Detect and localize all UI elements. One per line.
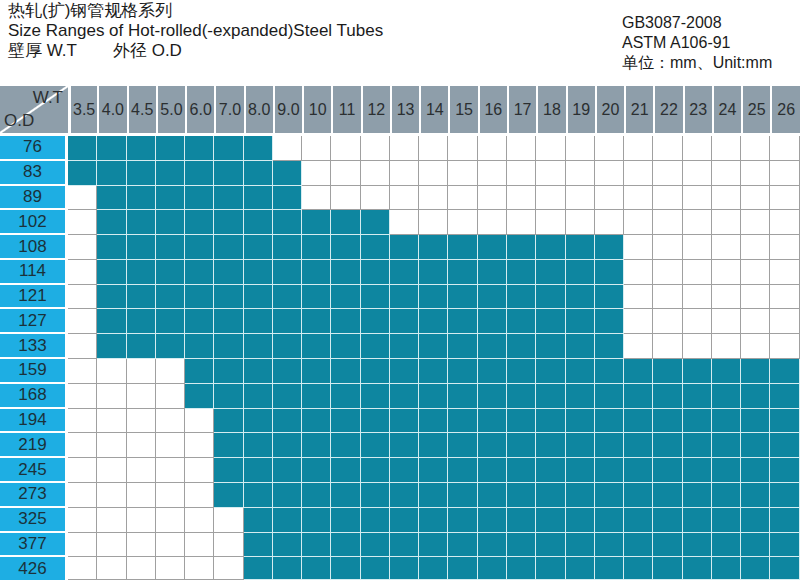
size-cell-available — [214, 384, 243, 409]
size-cell-empty — [712, 309, 741, 334]
size-cell-available — [478, 235, 507, 260]
size-cell-available — [712, 359, 741, 384]
size-cell-available — [244, 161, 273, 186]
size-cell-empty — [273, 136, 302, 161]
size-cell-available — [566, 309, 595, 334]
size-cell-available — [507, 260, 536, 285]
size-cell-empty — [331, 186, 360, 211]
size-cell-empty — [97, 409, 126, 434]
axis-legend: 壁厚 W.T外径 O.D — [8, 41, 383, 61]
size-cell-available — [741, 533, 770, 558]
size-cell-empty — [653, 285, 682, 310]
wt-column-header: 26 — [770, 86, 800, 136]
od-row-header: 102 — [0, 210, 68, 235]
size-cell-available — [448, 483, 477, 508]
size-cell-available — [624, 359, 653, 384]
size-cell-available — [566, 533, 595, 558]
size-cell-empty — [536, 136, 565, 161]
size-cell-available — [97, 285, 126, 310]
size-cell-available — [97, 309, 126, 334]
size-cell-available — [97, 260, 126, 285]
size-cell-empty — [127, 458, 156, 483]
wt-column-header: 21 — [624, 86, 653, 136]
size-cell-available — [536, 334, 565, 359]
table-row: 127 — [0, 309, 800, 334]
size-cell-available — [566, 458, 595, 483]
size-cell-available — [566, 433, 595, 458]
size-cell-available — [273, 285, 302, 310]
size-cell-empty — [97, 557, 126, 580]
size-cell-empty — [156, 508, 185, 533]
size-cell-available — [390, 508, 419, 533]
standard-astm: ASTM A106-91 — [622, 33, 772, 53]
size-cell-empty — [419, 136, 448, 161]
size-cell-empty — [770, 161, 800, 186]
od-row-header: 377 — [0, 533, 68, 558]
table-row: 76 — [0, 136, 800, 161]
size-cell-empty — [97, 433, 126, 458]
size-cell-empty — [507, 136, 536, 161]
size-cell-empty — [712, 260, 741, 285]
size-cell-available — [156, 186, 185, 211]
size-cell-available — [448, 384, 477, 409]
wt-column-header: 8.0 — [244, 86, 273, 136]
size-cell-empty — [595, 210, 624, 235]
size-cell-available — [331, 210, 360, 235]
size-cell-available — [390, 285, 419, 310]
size-cell-available — [419, 409, 448, 434]
size-cell-empty — [448, 186, 477, 211]
size-cell-available — [273, 235, 302, 260]
wt-column-header: 24 — [712, 86, 741, 136]
size-cell-available — [566, 260, 595, 285]
size-cell-available — [361, 458, 390, 483]
size-cell-available — [595, 508, 624, 533]
size-cell-empty — [624, 235, 653, 260]
size-cell-available — [244, 384, 273, 409]
size-cell-available — [448, 285, 477, 310]
size-cell-available — [185, 136, 214, 161]
size-cell-available — [127, 136, 156, 161]
size-cell-empty — [624, 285, 653, 310]
size-cell-available — [214, 285, 243, 310]
size-cell-available — [448, 260, 477, 285]
size-cell-empty — [68, 458, 97, 483]
size-cell-empty — [536, 186, 565, 211]
size-cell-available — [683, 384, 712, 409]
table-row: 133 — [0, 334, 800, 359]
size-cell-empty — [770, 334, 800, 359]
size-cell-available — [770, 409, 800, 434]
size-cell-available — [419, 384, 448, 409]
size-cell-empty — [770, 309, 800, 334]
size-cell-available — [214, 210, 243, 235]
size-cell-available — [624, 433, 653, 458]
size-cell-available — [770, 508, 800, 533]
size-cell-available — [273, 359, 302, 384]
size-cell-empty — [361, 136, 390, 161]
size-cell-available — [712, 433, 741, 458]
wt-column-header: 17 — [507, 86, 536, 136]
size-cell-available — [712, 483, 741, 508]
size-cell-available — [361, 210, 390, 235]
unit-note: 单位：mm、Unit:mm — [622, 53, 772, 73]
size-cell-available — [302, 359, 331, 384]
size-cell-available — [185, 359, 214, 384]
size-cell-available — [244, 533, 273, 558]
size-cell-available — [273, 409, 302, 434]
size-cell-empty — [97, 508, 126, 533]
size-cell-available — [683, 458, 712, 483]
size-cell-available — [273, 557, 302, 580]
table-row: 245 — [0, 458, 800, 483]
od-row-header: 89 — [0, 186, 68, 211]
size-cell-available — [595, 533, 624, 558]
size-cell-empty — [97, 458, 126, 483]
size-cell-empty — [419, 186, 448, 211]
size-cell-available — [156, 235, 185, 260]
size-cell-available — [97, 235, 126, 260]
table-row: 168 — [0, 384, 800, 409]
table-row: 108 — [0, 235, 800, 260]
size-cell-available — [478, 384, 507, 409]
size-cell-available — [361, 359, 390, 384]
size-cell-available — [302, 533, 331, 558]
size-cell-available — [97, 136, 126, 161]
size-cell-available — [331, 433, 360, 458]
page-title-en: Size Ranges of Hot-rolled(-expanded)Stee… — [8, 21, 383, 41]
size-cell-available — [566, 285, 595, 310]
size-cell-available — [68, 161, 97, 186]
size-cell-empty — [653, 309, 682, 334]
size-cell-available — [653, 533, 682, 558]
size-cell-empty — [68, 210, 97, 235]
size-cell-available — [214, 309, 243, 334]
size-cell-available — [302, 260, 331, 285]
size-cell-available — [244, 557, 273, 580]
size-cell-available — [390, 334, 419, 359]
size-cell-available — [595, 557, 624, 580]
size-cell-available — [214, 409, 243, 434]
size-cell-empty — [566, 210, 595, 235]
size-cell-empty — [624, 260, 653, 285]
size-cell-available — [185, 235, 214, 260]
size-cell-available — [566, 334, 595, 359]
wt-column-header: 3.5 — [68, 86, 97, 136]
size-cell-available — [683, 359, 712, 384]
size-cell-available — [361, 409, 390, 434]
size-cell-empty — [770, 186, 800, 211]
table-row: 89 — [0, 186, 800, 211]
size-cell-empty — [361, 186, 390, 211]
size-cell-available — [214, 359, 243, 384]
size-cell-available — [478, 285, 507, 310]
size-cell-empty — [712, 210, 741, 235]
size-cell-empty — [331, 136, 360, 161]
size-cell-available — [361, 533, 390, 558]
size-cell-empty — [624, 334, 653, 359]
table-row: 194 — [0, 409, 800, 434]
size-cell-available — [127, 210, 156, 235]
size-cell-available — [478, 409, 507, 434]
size-cell-available — [214, 458, 243, 483]
size-cell-empty — [566, 161, 595, 186]
size-cell-available — [156, 309, 185, 334]
size-cell-available — [361, 285, 390, 310]
size-cell-available — [419, 359, 448, 384]
size-cell-available — [507, 433, 536, 458]
size-cell-available — [624, 409, 653, 434]
size-cell-available — [390, 359, 419, 384]
size-cell-empty — [127, 483, 156, 508]
size-cell-available — [97, 161, 126, 186]
size-cell-empty — [624, 161, 653, 186]
size-cell-empty — [566, 186, 595, 211]
size-cell-empty — [741, 260, 770, 285]
size-cell-empty — [68, 309, 97, 334]
wt-column-header: 15 — [448, 86, 477, 136]
legend-od: 外径 O.D — [113, 41, 182, 60]
size-cell-available — [156, 136, 185, 161]
od-row-header: 426 — [0, 557, 68, 580]
size-cell-empty — [653, 186, 682, 211]
size-cell-available — [624, 483, 653, 508]
size-cell-available — [273, 161, 302, 186]
size-cell-available — [448, 433, 477, 458]
size-cell-available — [624, 458, 653, 483]
size-cell-available — [419, 458, 448, 483]
size-cell-available — [127, 260, 156, 285]
size-cell-available — [683, 533, 712, 558]
size-cell-empty — [390, 186, 419, 211]
size-cell-available — [536, 458, 565, 483]
size-cell-available — [683, 409, 712, 434]
size-cell-available — [273, 458, 302, 483]
size-cell-available — [361, 483, 390, 508]
size-cell-empty — [566, 136, 595, 161]
size-cell-empty — [712, 235, 741, 260]
size-cell-available — [595, 433, 624, 458]
size-cell-empty — [712, 334, 741, 359]
size-cell-available — [302, 557, 331, 580]
size-cell-available — [478, 309, 507, 334]
size-cell-available — [244, 359, 273, 384]
size-cell-available — [361, 508, 390, 533]
size-cell-available — [244, 508, 273, 533]
size-cell-available — [478, 533, 507, 558]
wt-column-header: 19 — [566, 86, 595, 136]
wt-column-header: 4.0 — [97, 86, 126, 136]
size-cell-empty — [68, 483, 97, 508]
size-cell-empty — [712, 186, 741, 211]
size-cell-empty — [507, 186, 536, 211]
size-cell-empty — [156, 458, 185, 483]
size-cell-available — [419, 508, 448, 533]
size-cell-empty — [302, 161, 331, 186]
size-cell-empty — [683, 309, 712, 334]
size-cell-empty — [653, 210, 682, 235]
table-row: 325 — [0, 508, 800, 533]
size-cell-available — [331, 533, 360, 558]
size-cell-empty — [156, 359, 185, 384]
size-cell-available — [302, 508, 331, 533]
page-title-cn: 热轧(扩)钢管规格系列 — [8, 1, 383, 21]
size-cell-available — [185, 334, 214, 359]
corner-wt-label: W.T — [33, 88, 63, 108]
size-cell-empty — [68, 409, 97, 434]
corner-od-label: O.D — [4, 111, 34, 131]
size-cell-empty — [507, 210, 536, 235]
od-row-header: 159 — [0, 359, 68, 384]
size-cell-available — [273, 508, 302, 533]
corner-header-cell: W.T O.D — [0, 86, 68, 136]
size-cell-available — [507, 359, 536, 384]
legend-wt: 壁厚 W.T — [8, 41, 77, 60]
size-cell-empty — [741, 186, 770, 211]
size-cell-available — [214, 136, 243, 161]
size-cell-empty — [478, 186, 507, 211]
size-cell-available — [244, 309, 273, 334]
size-cell-available — [302, 210, 331, 235]
size-cell-empty — [156, 409, 185, 434]
size-cell-empty — [595, 136, 624, 161]
size-cell-available — [448, 508, 477, 533]
size-cell-available — [127, 161, 156, 186]
size-cell-available — [302, 334, 331, 359]
wt-column-header: 6.0 — [185, 86, 214, 136]
size-cell-empty — [214, 508, 243, 533]
size-cell-available — [770, 458, 800, 483]
wt-column-header: 16 — [478, 86, 507, 136]
size-cell-empty — [712, 285, 741, 310]
size-cell-available — [770, 359, 800, 384]
table-row: 102 — [0, 210, 800, 235]
od-row-header: 325 — [0, 508, 68, 533]
size-cell-available — [448, 309, 477, 334]
size-cell-available — [478, 334, 507, 359]
size-cell-empty — [127, 557, 156, 580]
od-row-header: 127 — [0, 309, 68, 334]
size-cell-available — [214, 334, 243, 359]
size-cell-empty — [302, 186, 331, 211]
size-cell-empty — [68, 260, 97, 285]
size-cell-available — [302, 235, 331, 260]
size-cell-available — [712, 533, 741, 558]
size-cell-available — [214, 483, 243, 508]
size-cell-available — [595, 260, 624, 285]
size-cell-empty — [214, 533, 243, 558]
size-cell-empty — [390, 210, 419, 235]
size-cell-available — [566, 235, 595, 260]
wt-column-header: 4.5 — [127, 86, 156, 136]
od-row-header: 273 — [0, 483, 68, 508]
size-cell-empty — [624, 186, 653, 211]
size-cell-empty — [741, 210, 770, 235]
size-cell-available — [331, 309, 360, 334]
size-cell-empty — [390, 136, 419, 161]
wt-column-header: 5.0 — [156, 86, 185, 136]
size-cell-available — [536, 557, 565, 580]
size-cell-available — [712, 458, 741, 483]
size-cell-available — [566, 508, 595, 533]
size-cell-empty — [770, 210, 800, 235]
size-cell-available — [361, 260, 390, 285]
size-cell-available — [390, 384, 419, 409]
size-cell-available — [566, 483, 595, 508]
size-cell-available — [214, 433, 243, 458]
size-cell-empty — [536, 210, 565, 235]
wt-header-row: W.T O.D 3.54.04.55.06.07.08.09.010111213… — [0, 86, 800, 136]
size-cell-available — [331, 508, 360, 533]
table-row: 377 — [0, 533, 800, 558]
size-cell-empty — [712, 136, 741, 161]
size-cell-available — [273, 309, 302, 334]
size-cell-available — [624, 557, 653, 580]
size-cell-available — [653, 359, 682, 384]
od-row-header: 168 — [0, 384, 68, 409]
od-row-header: 133 — [0, 334, 68, 359]
size-cell-available — [770, 433, 800, 458]
standard-gb: GB3087-2008 — [622, 13, 772, 33]
size-cell-available — [185, 186, 214, 211]
size-cell-empty — [185, 458, 214, 483]
size-cell-empty — [97, 384, 126, 409]
size-cell-available — [331, 384, 360, 409]
size-cell-available — [478, 359, 507, 384]
size-cell-empty — [653, 334, 682, 359]
size-cell-available — [507, 458, 536, 483]
size-cell-available — [507, 309, 536, 334]
size-cell-available — [566, 409, 595, 434]
table-row: 121 — [0, 285, 800, 310]
size-cell-available — [361, 557, 390, 580]
size-cell-available — [302, 433, 331, 458]
size-cell-empty — [390, 161, 419, 186]
size-cell-empty — [624, 309, 653, 334]
size-cell-available — [448, 557, 477, 580]
size-cell-available — [683, 483, 712, 508]
size-cell-available — [331, 359, 360, 384]
size-cell-empty — [595, 161, 624, 186]
size-cell-empty — [185, 557, 214, 580]
size-cell-available — [624, 533, 653, 558]
size-cell-empty — [448, 136, 477, 161]
size-cell-empty — [741, 161, 770, 186]
size-cell-empty — [653, 161, 682, 186]
size-cell-available — [536, 483, 565, 508]
size-cell-available — [536, 384, 565, 409]
table-row: 159 — [0, 359, 800, 384]
wt-column-header: 11 — [331, 86, 360, 136]
size-cell-empty — [448, 210, 477, 235]
size-cell-available — [770, 384, 800, 409]
size-cell-empty — [653, 260, 682, 285]
od-row-header: 76 — [0, 136, 68, 161]
size-cell-available — [244, 260, 273, 285]
size-cell-available — [507, 285, 536, 310]
size-cell-empty — [156, 483, 185, 508]
size-cell-available — [448, 235, 477, 260]
size-cell-available — [390, 433, 419, 458]
size-cell-available — [390, 533, 419, 558]
size-cell-available — [156, 210, 185, 235]
size-cell-available — [507, 483, 536, 508]
wt-column-header: 14 — [419, 86, 448, 136]
size-cell-empty — [653, 235, 682, 260]
wt-column-header: 23 — [683, 86, 712, 136]
size-cell-empty — [127, 409, 156, 434]
size-cell-available — [390, 458, 419, 483]
